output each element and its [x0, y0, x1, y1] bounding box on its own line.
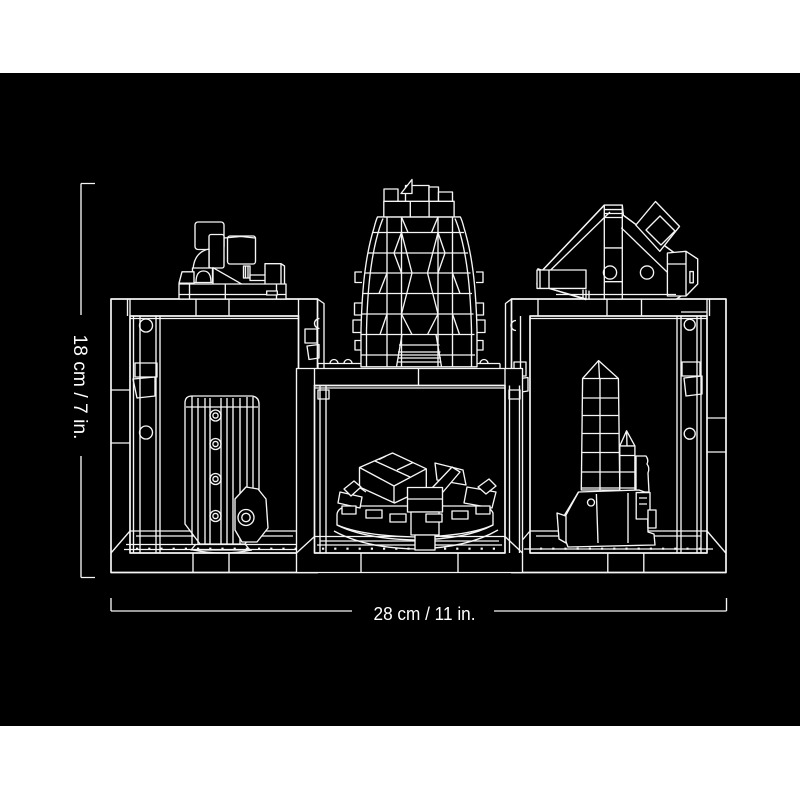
svg-text:28 cm / 11 in.: 28 cm / 11 in.: [374, 603, 476, 624]
svg-text:18 cm / 7 in.: 18 cm / 7 in.: [69, 335, 91, 440]
